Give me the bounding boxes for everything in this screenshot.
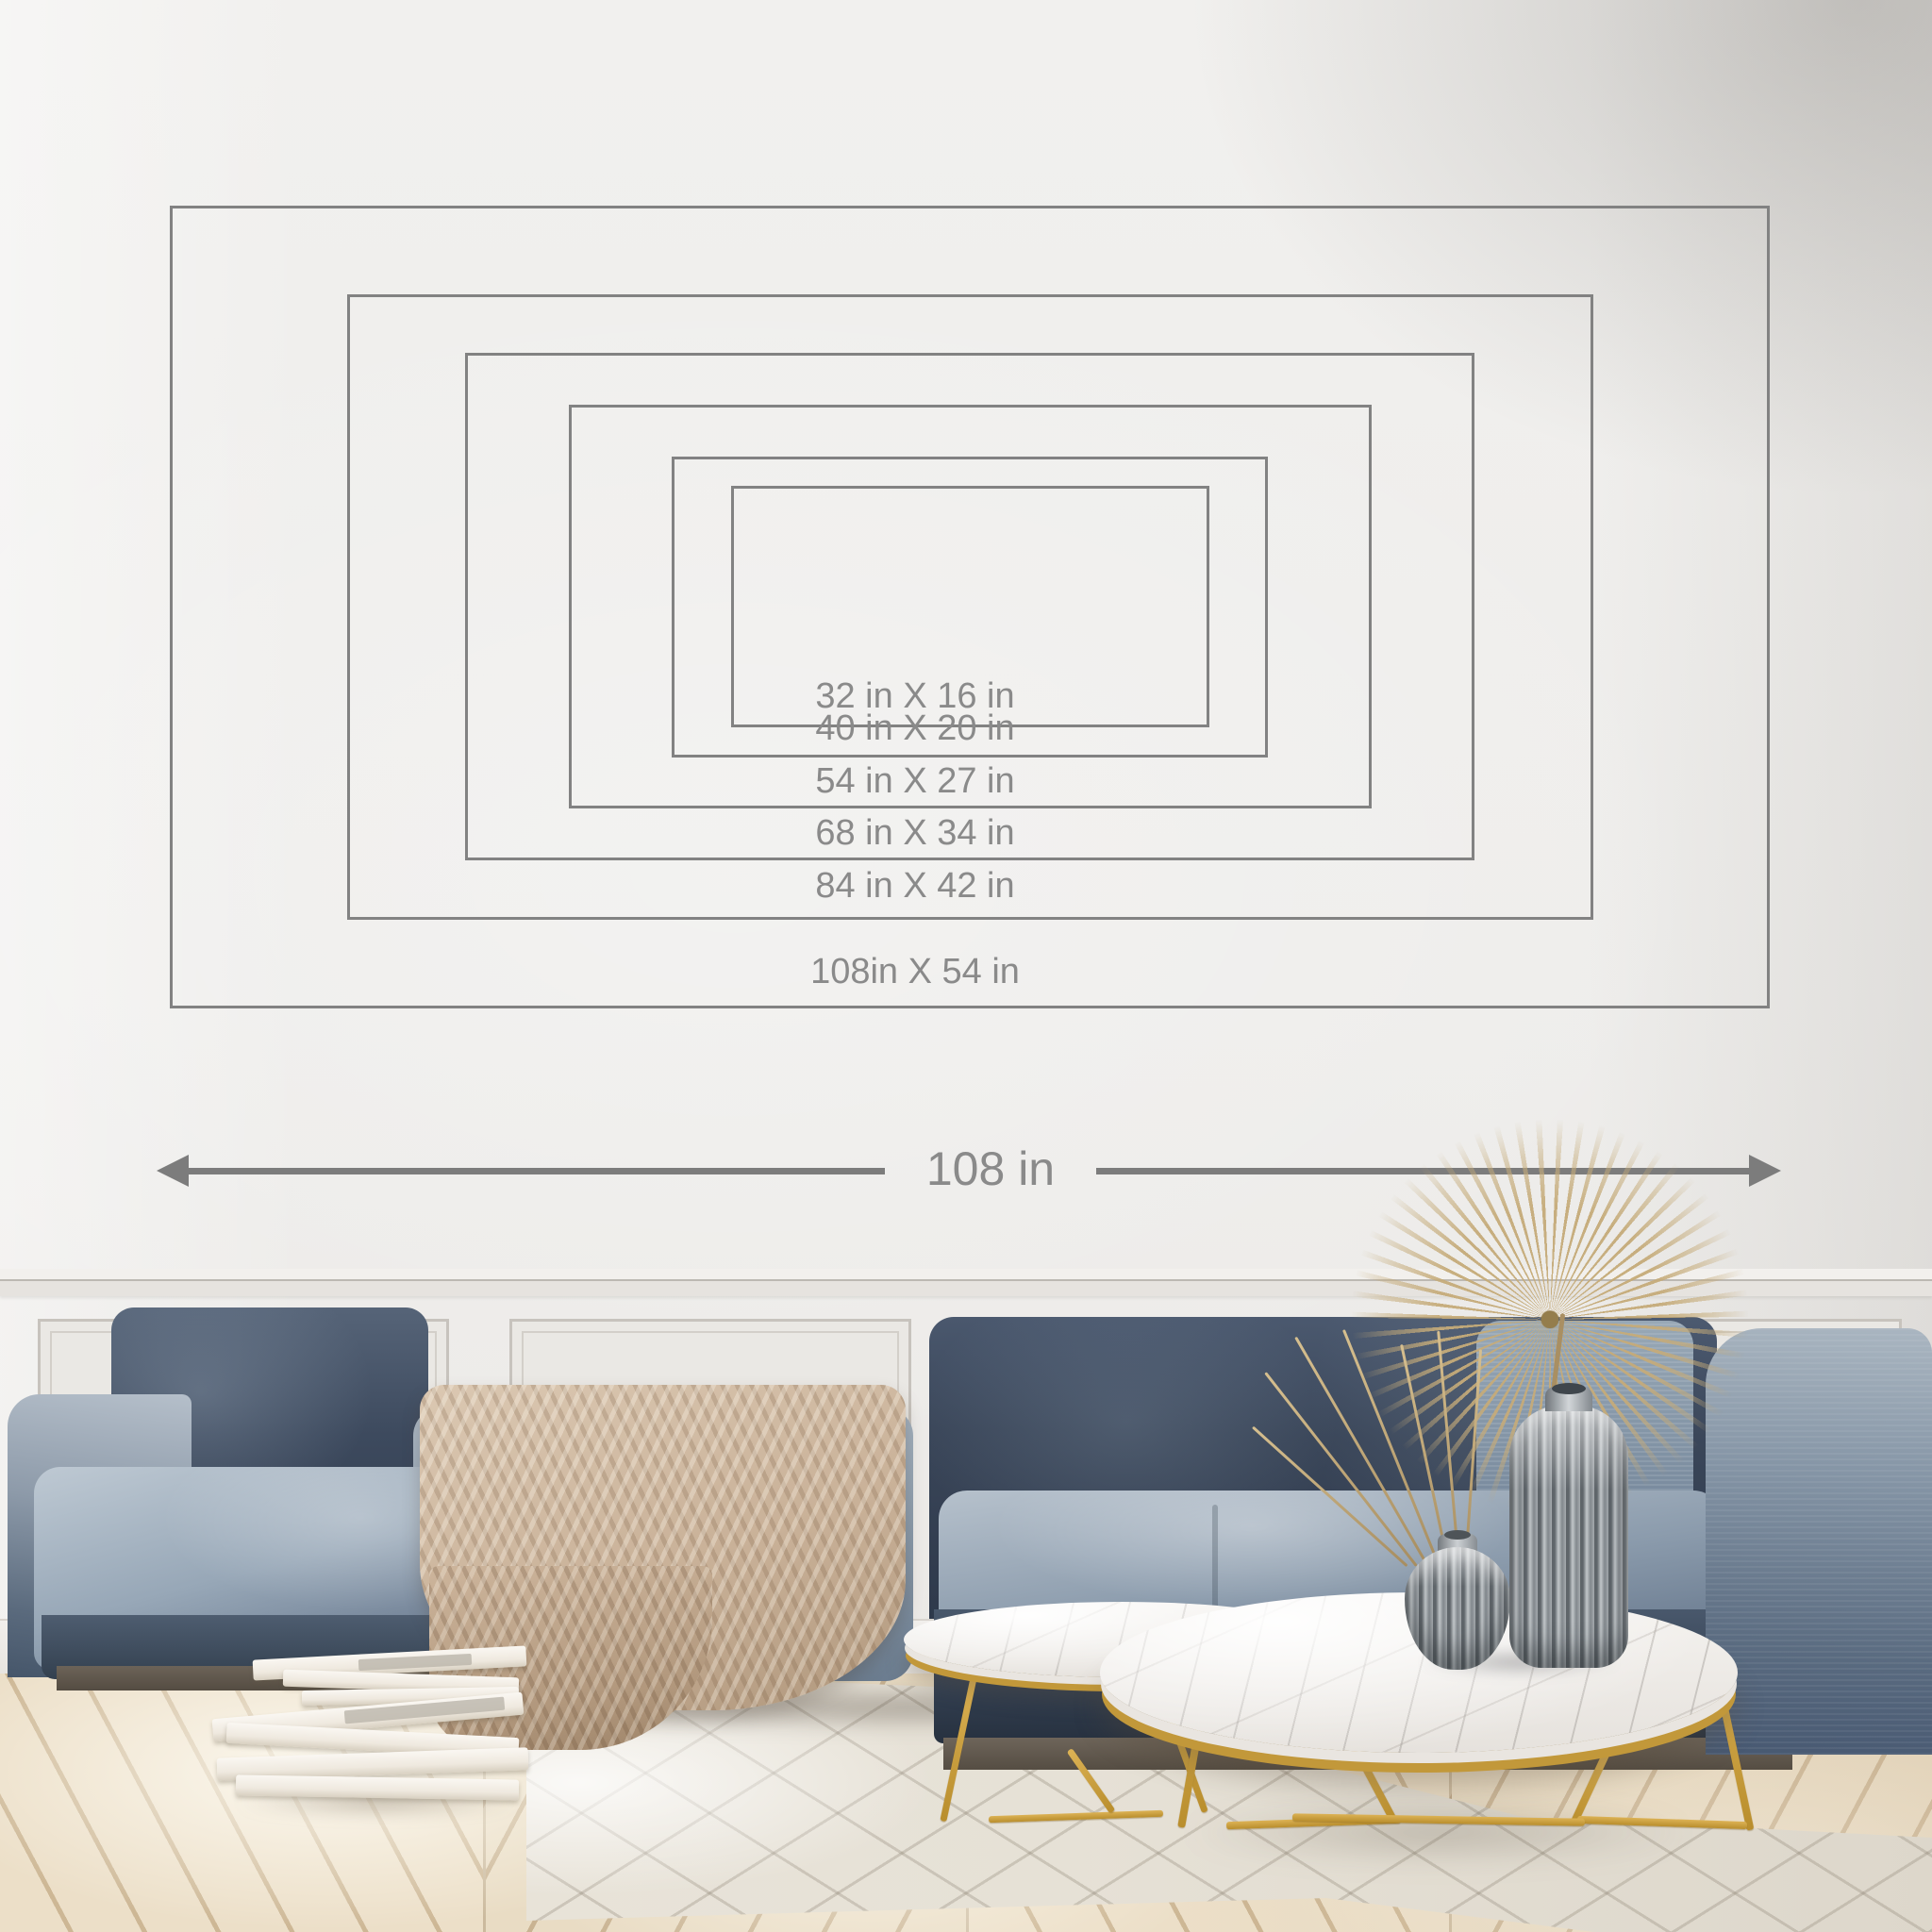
tall-vase-mouth — [1552, 1383, 1586, 1394]
arrow-head-right-icon — [1749, 1155, 1781, 1187]
width-dimension-label: 108 in — [887, 1141, 1094, 1196]
arrow-head-left-icon — [157, 1155, 189, 1187]
size-label-40x20: 40 in X 20 in — [604, 708, 1226, 749]
sofa-right-armrest — [1706, 1328, 1932, 1755]
small-vase-mouth — [1444, 1530, 1471, 1540]
size-label-108x54: 108in X 54 in — [604, 951, 1226, 992]
tall-ribbed-vase — [1509, 1406, 1628, 1668]
mural-size-guide-photo: 32 in X 16 in 40 in X 20 in 54 in X 27 i… — [0, 0, 1932, 1932]
size-label-68x34: 68 in X 34 in — [604, 812, 1226, 854]
size-label-84x42: 84 in X 42 in — [604, 865, 1226, 907]
arrow-line-left — [187, 1168, 885, 1174]
size-label-54x27: 54 in X 27 in — [604, 760, 1226, 802]
